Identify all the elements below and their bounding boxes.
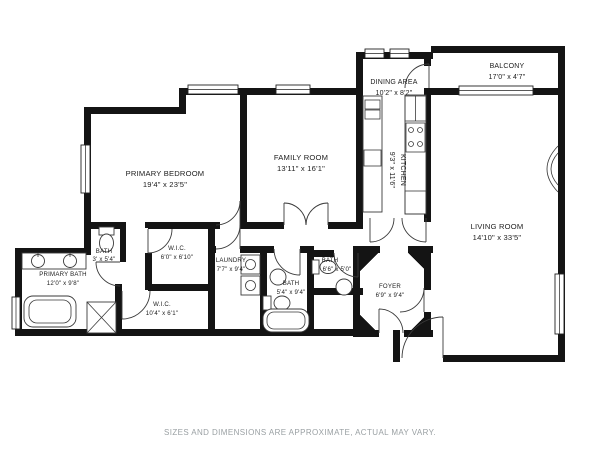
wic-1-name: W.I.C. [168,245,186,252]
bath-guest-dims: 6'6" x 5'0" [323,266,352,273]
room-label-foyer: FOYER 6'9" x 9'4" [376,283,405,299]
family-room-dims: 13'11" x 16'1" [277,164,325,173]
room-label-wic-1: W.I.C. 6'0" x 6'10" [161,245,193,261]
room-label-dining-area: DINING AREA 10'2" x 8'2" [370,79,417,97]
room-label-balcony: BALCONY 17'0" x 4'7" [489,63,526,81]
fireplace-niche [547,146,558,192]
kitchen-dims: 9'3" x 11'6" [388,152,395,189]
bath-small-name: BATH [96,248,113,255]
floor-plan: PRIMARY BEDROOM 19'4" x 23'5" FAMILY ROO… [0,0,600,450]
room-label-wic-2: W.I.C. 10'4" x 6'1" [146,301,178,317]
foyer-name: FOYER [379,283,401,290]
bath-hall-dims: 5'4" x 9'4" [277,289,306,296]
primary-bedroom-dims: 19'4" x 23'5" [143,180,187,189]
wic-1-dims: 6'0" x 6'10" [161,254,193,261]
room-label-primary-bedroom: PRIMARY BEDROOM 19'4" x 23'5" [126,169,205,189]
balcony-dims: 17'0" x 4'7" [489,74,526,81]
room-label-living-room: LIVING ROOM 14'10" x 33'5" [471,222,524,242]
primary-bath-name: PRIMARY BATH [39,271,86,278]
floor-plan-canvas: PRIMARY BEDROOM 19'4" x 23'5" FAMILY ROO… [0,0,600,450]
bath-hall-name: BATH [283,280,300,287]
wic-2-dims: 10'4" x 6'1" [146,310,178,317]
living-room-name: LIVING ROOM [471,222,524,231]
kitchen-name: KITCHEN [399,154,406,186]
room-label-family-room: FAMILY ROOM 13'11" x 16'1" [274,153,328,173]
disclaimer-text: SIZES AND DIMENSIONS ARE APPROXIMATE, AC… [0,428,600,437]
family-room-name: FAMILY ROOM [274,153,328,162]
foyer-dims: 6'9" x 9'4" [376,292,405,299]
laundry-name: LAUNDRY [216,257,246,264]
primary-bath-dims: 12'0" x 9'8" [47,280,79,287]
dining-area-name: DINING AREA [370,79,417,86]
room-label-primary-bath: PRIMARY BATH 12'0" x 9'8" [39,271,86,287]
wic-2-name: W.I.C. [153,301,171,308]
room-label-kitchen: KITCHEN 9'3" x 11'6" [388,152,406,189]
living-room-dims: 14'10" x 33'5" [473,233,522,242]
laundry-dims: 7'7" x 9'4" [217,266,246,273]
bath-small-dims: 3' x 5'4" [93,256,116,263]
primary-bedroom-name: PRIMARY BEDROOM [126,169,205,178]
balcony-name: BALCONY [490,63,525,70]
dining-area-dims: 10'2" x 8'2" [376,90,413,97]
room-label-bath-small: BATH 3' x 5'4" [93,248,116,263]
bath-guest-name: BATH [322,257,339,264]
